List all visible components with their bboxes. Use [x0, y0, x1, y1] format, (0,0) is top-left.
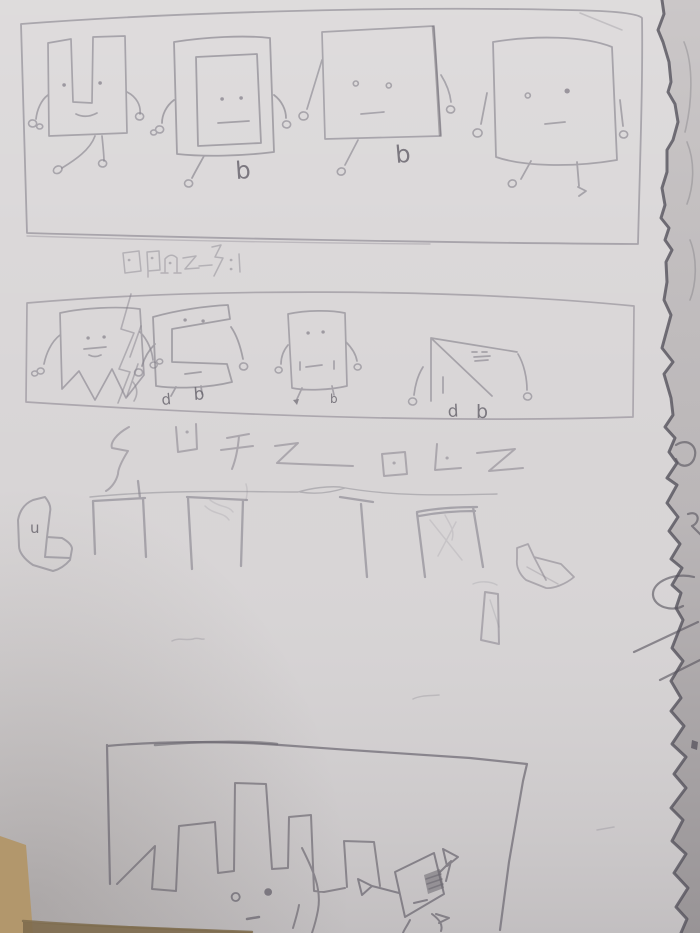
letter-b-4: b [330, 392, 338, 406]
letter-b-1: b [234, 156, 251, 185]
letter-d-1: d [161, 390, 172, 409]
letter-b-3: b [193, 384, 205, 405]
letter-d-2: d [447, 401, 459, 422]
letter-u: u [30, 519, 40, 537]
sketch-canvas: b b d b b d b u [0, 0, 700, 933]
letter-b-5: b [476, 401, 488, 423]
letter-b-2: b [394, 140, 412, 169]
photo-of-pencil-sketch: b b d b b d b u [0, 0, 700, 933]
